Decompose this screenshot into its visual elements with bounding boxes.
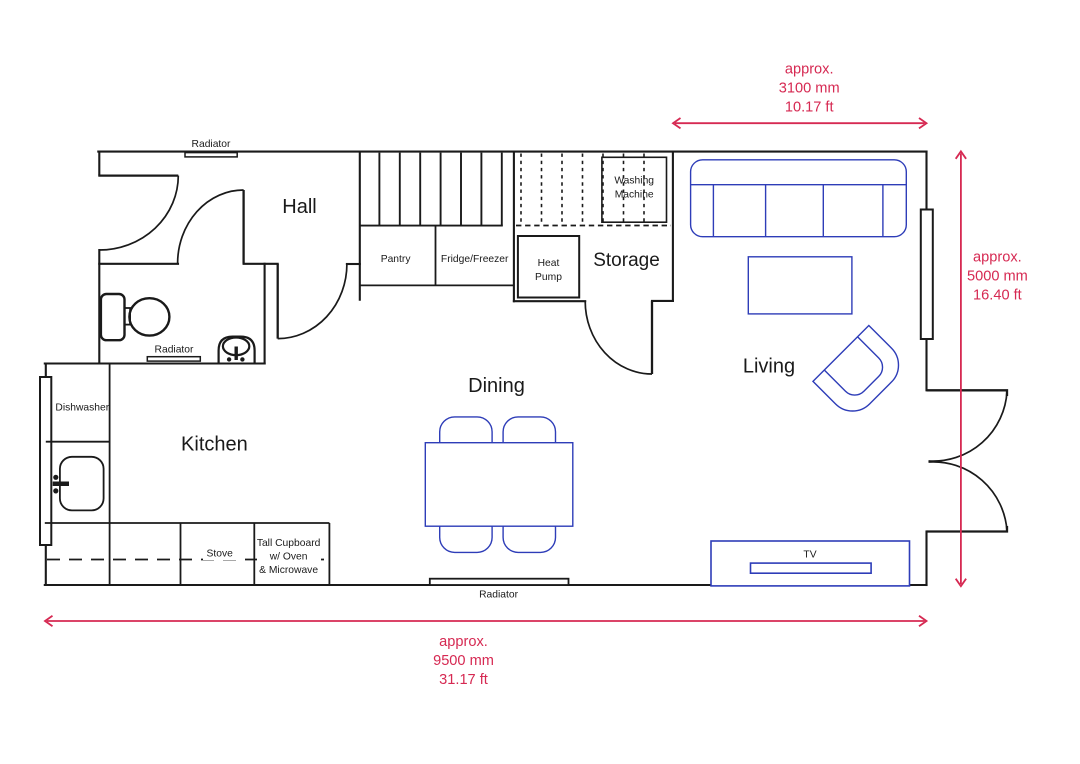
svg-text:Radiator: Radiator: [479, 590, 518, 601]
svg-text:Heat: Heat: [538, 258, 560, 269]
svg-text:TV: TV: [803, 550, 816, 561]
svg-text:31.17 ft: 31.17 ft: [439, 672, 488, 688]
svg-text:Machine: Machine: [615, 190, 654, 201]
svg-text:Storage: Storage: [593, 250, 660, 271]
svg-text:Living: Living: [743, 356, 795, 378]
svg-text:Dishwasher: Dishwasher: [55, 403, 109, 414]
svg-text:Kitchen: Kitchen: [181, 434, 248, 456]
svg-text:Dining: Dining: [468, 375, 525, 397]
svg-text:approx.: approx.: [785, 62, 834, 78]
svg-text:Washing: Washing: [614, 176, 654, 187]
svg-text:approx.: approx.: [973, 250, 1022, 266]
svg-text:10.17 ft: 10.17 ft: [785, 100, 834, 116]
svg-text:Tall Cupboard: Tall Cupboard: [257, 538, 321, 549]
svg-text:Hall: Hall: [282, 196, 316, 218]
svg-text:& Microwave: & Microwave: [259, 565, 318, 576]
svg-text:5000 mm: 5000 mm: [967, 269, 1028, 285]
svg-text:Pump: Pump: [535, 272, 562, 283]
svg-text:Pantry: Pantry: [381, 254, 412, 265]
svg-text:9500 mm: 9500 mm: [433, 653, 494, 669]
svg-text:w/ Oven: w/ Oven: [269, 552, 308, 563]
svg-text:Radiator: Radiator: [155, 345, 194, 356]
svg-text:approx.: approx.: [439, 634, 488, 650]
svg-text:Stove: Stove: [207, 549, 234, 560]
svg-text:Fridge/Freezer: Fridge/Freezer: [441, 254, 509, 265]
svg-text:3100 mm: 3100 mm: [779, 81, 840, 97]
svg-text:Radiator: Radiator: [192, 139, 231, 150]
svg-text:16.40 ft: 16.40 ft: [973, 288, 1022, 304]
